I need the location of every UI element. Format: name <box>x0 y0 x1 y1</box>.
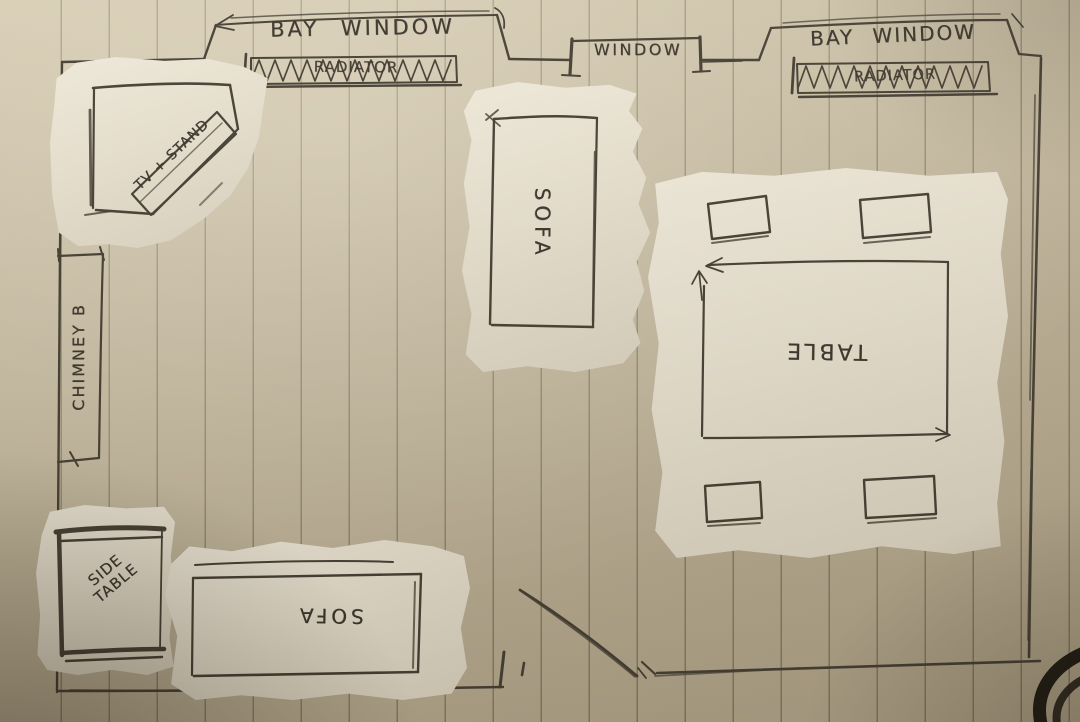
side-table-piece: SIDE TABLE <box>36 505 175 675</box>
floor-plan-photo: BAY WINDOW RADIATOR WINDOW BAY WINDOW RA… <box>0 0 1080 722</box>
chair-top-right <box>860 194 931 238</box>
sofa-bottom-piece: SOFA <box>165 540 470 700</box>
dining-table-piece: TABLE <box>648 168 1008 558</box>
chair-bottom-right <box>864 476 936 518</box>
window-label: WINDOW <box>577 41 699 59</box>
sofa-top-drawing <box>460 82 652 372</box>
dark-object-corner <box>1040 652 1080 722</box>
radiator-left-label: RADIATOR <box>256 58 456 77</box>
chair-bottom-left <box>705 482 762 522</box>
sofa-top-piece: SOFA <box>460 82 652 372</box>
sofa-top-label: SOFA <box>531 144 554 304</box>
dining-table-label: TABLE <box>726 336 926 365</box>
chair-top-left <box>708 196 770 239</box>
right-wall <box>1028 58 1041 657</box>
chimney-label: CHIMNEY B <box>70 269 90 445</box>
sofa-bottom-label: SOFA <box>230 602 430 628</box>
bay-window-left-label: BAY WINDOW <box>225 14 500 43</box>
door-swing-line <box>500 590 655 687</box>
